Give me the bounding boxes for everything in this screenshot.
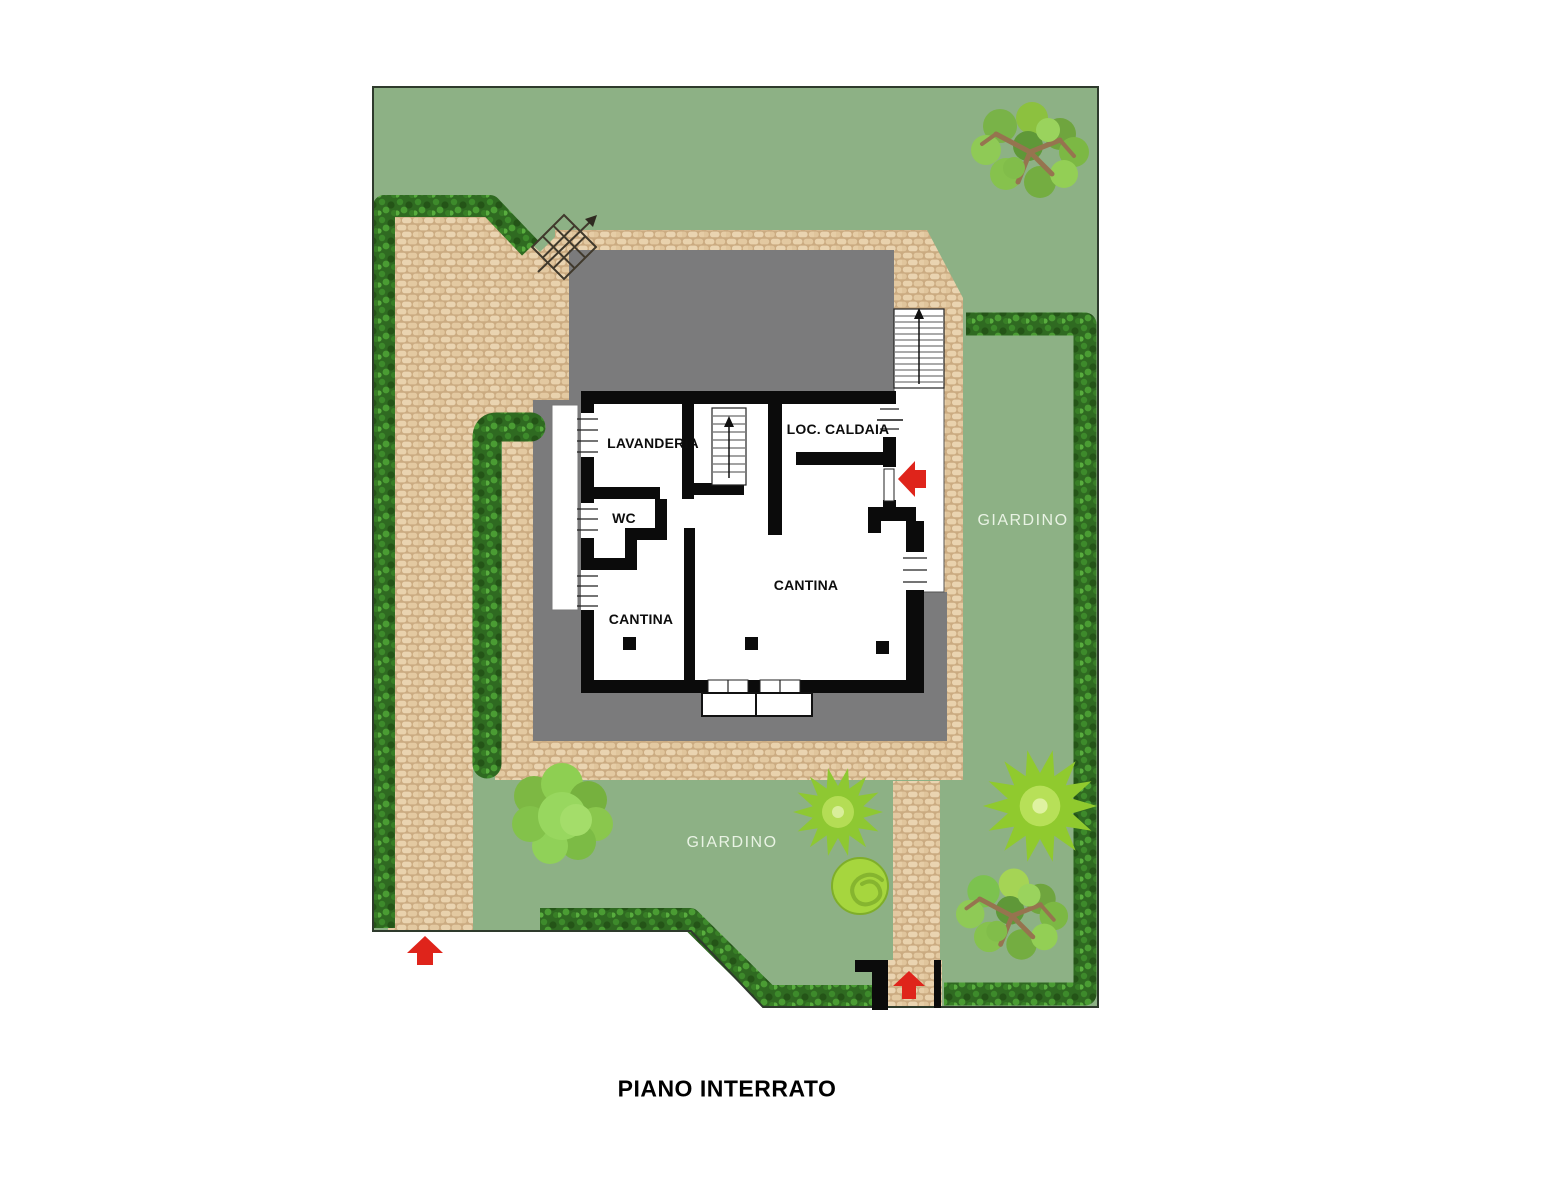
lightwell-south-1: [702, 693, 756, 716]
door-entry-east: [884, 469, 894, 501]
paved-strip-west: [502, 428, 537, 741]
room-label-lavanderia: LAVANDERIA: [607, 435, 699, 451]
pillar-2: [745, 637, 758, 650]
garden-label-right: GIARDINO: [977, 512, 1068, 530]
site-plan-drawing: [0, 0, 1546, 1192]
exterior-staircase: [894, 308, 944, 388]
room-label-cantina-small: CANTINA: [609, 611, 673, 627]
interior-staircase: [712, 408, 746, 485]
wall-entry-leg: [868, 521, 881, 533]
wall-cantina-divider: [684, 528, 695, 693]
window-south-1: [708, 680, 748, 693]
garden-label-bottom: GIARDINO: [686, 834, 777, 852]
room-label-wc: WC: [612, 510, 636, 526]
wall-east-lower: [906, 590, 924, 693]
page-title: PIANO INTERRATO: [618, 1076, 837, 1103]
room-label-loc-caldaia: LOC. CALDAIA: [787, 421, 890, 437]
window-east-lower: [903, 552, 927, 590]
pillar-1: [623, 637, 636, 650]
room-label-cantina-large: CANTINA: [774, 577, 838, 593]
lightwell-strip-west: [552, 405, 578, 610]
entrance-arrow-driveway-icon: [407, 936, 443, 965]
wall-south: [581, 680, 924, 693]
wall-caldaia-east: [883, 437, 896, 467]
pillar-3: [876, 641, 889, 654]
floor-plan-page: LAVANDERIA LOC. CALDAIA WC CANTINA CANTI…: [0, 0, 1546, 1192]
wall-lavanderia-south: [594, 487, 660, 499]
bush-spiral-icon: [832, 858, 888, 914]
wall-caldaia-south: [796, 452, 883, 465]
wall-entry-bar: [868, 507, 916, 521]
wall-east-upper: [906, 521, 924, 552]
wall-caldaia-west: [768, 404, 782, 535]
wall-north: [581, 391, 896, 404]
wall-wc-south: [594, 558, 637, 570]
lightwell-south-2: [756, 693, 812, 716]
window-south-2: [760, 680, 800, 693]
